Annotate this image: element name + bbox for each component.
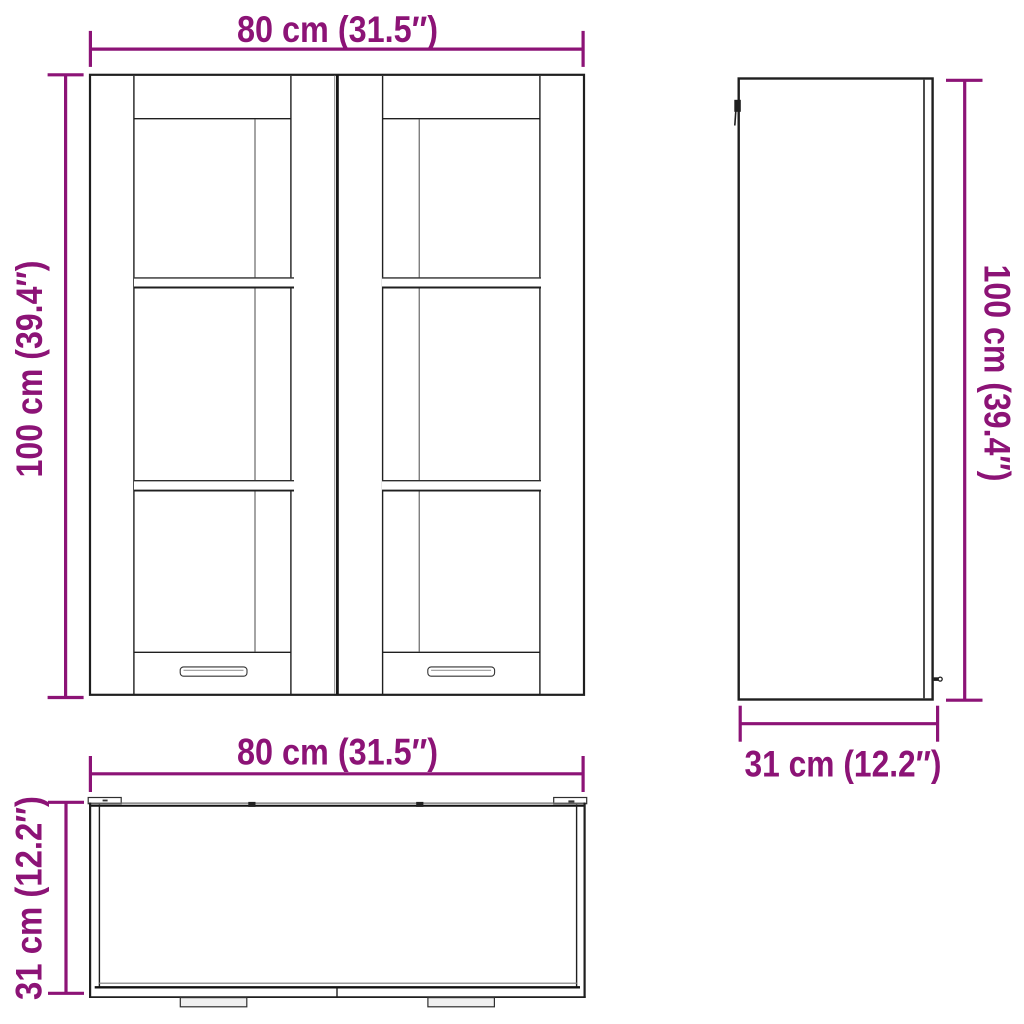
svg-text:31 cm (12.2″): 31 cm (12.2″) (745, 743, 942, 784)
svg-text:100 cm (39.4″): 100 cm (39.4″) (9, 261, 50, 478)
svg-text:31 cm (12.2″): 31 cm (12.2″) (8, 796, 49, 1000)
svg-text:100 cm (39.4″): 100 cm (39.4″) (977, 265, 1018, 482)
svg-text:80 cm (31.5″): 80 cm (31.5″) (237, 9, 438, 50)
svg-text:80 cm (31.5″): 80 cm (31.5″) (237, 732, 438, 773)
